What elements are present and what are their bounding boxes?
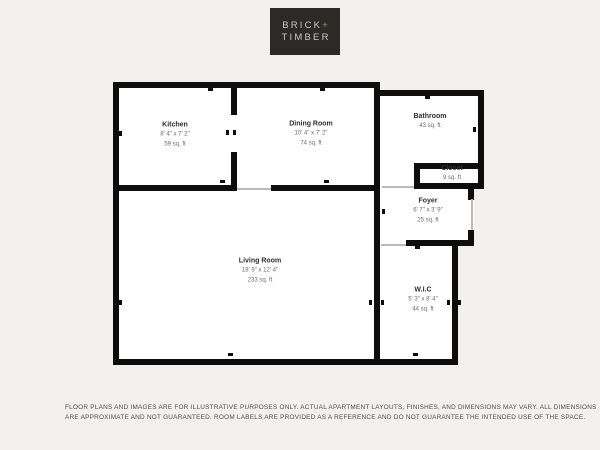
wall <box>113 82 380 88</box>
room-dimensions: 8' 4" x 7' 2" <box>160 132 190 139</box>
disclaimer-line-2: ARE APPROXIMATE AND NOT GUARANTEED. ROOM… <box>65 413 535 423</box>
measurement-tick <box>458 300 461 305</box>
measurement-tick <box>226 130 229 135</box>
wall <box>231 82 237 115</box>
room-floor <box>380 90 484 188</box>
room-area: 9 sq. ft <box>441 176 462 183</box>
room-name: Closet <box>441 165 462 173</box>
disclaimer-line-1: FLOOR PLANS AND IMAGES ARE FOR ILLUSTRAT… <box>65 403 535 413</box>
door-opening-line <box>382 186 414 188</box>
room-area: 59 sq. ft <box>160 141 190 148</box>
room-dimensions: 18' 9" x 12' 4" <box>239 268 281 275</box>
room-label-bathroom: Bathroom43 sq. ft <box>413 113 446 131</box>
room-floor <box>113 82 380 365</box>
measurement-tick <box>382 209 385 214</box>
room-area: 233 sq. ft <box>239 277 281 284</box>
room-label-dining-room: Dining Room10' 4" x 7' 2"74 sq. ft <box>289 121 333 148</box>
measurement-tick <box>208 88 213 91</box>
room-area: 25 sq. ft <box>413 217 443 224</box>
wall <box>113 359 380 365</box>
room-label-living-room: Living Room18' 9" x 12' 4"233 sq. ft <box>239 258 281 285</box>
wall <box>380 90 484 96</box>
floorplan: Kitchen8' 4" x 7' 2"59 sq. ftDining Room… <box>0 0 600 450</box>
room-label-closet: Closet9 sq. ft <box>441 165 462 183</box>
measurement-tick <box>447 300 450 305</box>
measurement-tick <box>228 353 233 356</box>
room-area: 74 sq. ft <box>289 140 333 147</box>
measurement-tick <box>381 300 384 305</box>
door-opening-line <box>471 199 473 230</box>
measurement-tick <box>413 353 418 356</box>
measurement-tick <box>320 88 325 91</box>
disclaimer-text: FLOOR PLANS AND IMAGES ARE FOR ILLUSTRAT… <box>65 403 535 424</box>
room-name: Living Room <box>239 258 281 266</box>
room-label-kitchen: Kitchen8' 4" x 7' 2"59 sq. ft <box>160 122 190 149</box>
room-label-wic: W.I.C5' 3" x 8' 4"44 sq. ft <box>408 287 438 314</box>
door-opening-line <box>381 244 406 246</box>
room-name: W.I.C <box>408 287 438 295</box>
door-opening-line <box>237 188 271 190</box>
room-name: Dining Room <box>289 121 333 129</box>
measurement-tick <box>369 300 372 305</box>
measurement-tick <box>119 131 122 136</box>
measurement-tick <box>425 96 430 99</box>
room-label-foyer: Foyer6' 7" x 3' 9"25 sq. ft <box>413 198 443 225</box>
room-area: 44 sq. ft <box>408 306 438 313</box>
wall <box>113 185 237 191</box>
room-name: Bathroom <box>413 113 446 121</box>
wall <box>452 246 458 365</box>
measurement-tick <box>233 130 236 135</box>
wall <box>478 90 484 189</box>
room-dimensions: 5' 3" x 8' 4" <box>408 297 438 304</box>
floorplan-page: BRICK+ TIMBER Kitchen8' 4" x 7' 2"59 sq.… <box>0 0 600 450</box>
room-dimensions: 10' 4" x 7' 2" <box>289 131 333 138</box>
wall <box>374 359 458 365</box>
measurement-tick <box>473 127 476 132</box>
room-name: Kitchen <box>160 122 190 130</box>
room-dimensions: 6' 7" x 3' 9" <box>413 208 443 215</box>
measurement-tick <box>220 180 225 183</box>
measurement-tick <box>324 180 329 183</box>
wall <box>113 82 119 365</box>
wall <box>271 185 380 191</box>
measurement-tick <box>415 246 420 249</box>
room-name: Foyer <box>413 198 443 206</box>
wall <box>374 82 380 365</box>
measurement-tick <box>119 300 122 305</box>
room-area: 43 sq. ft <box>413 124 446 131</box>
